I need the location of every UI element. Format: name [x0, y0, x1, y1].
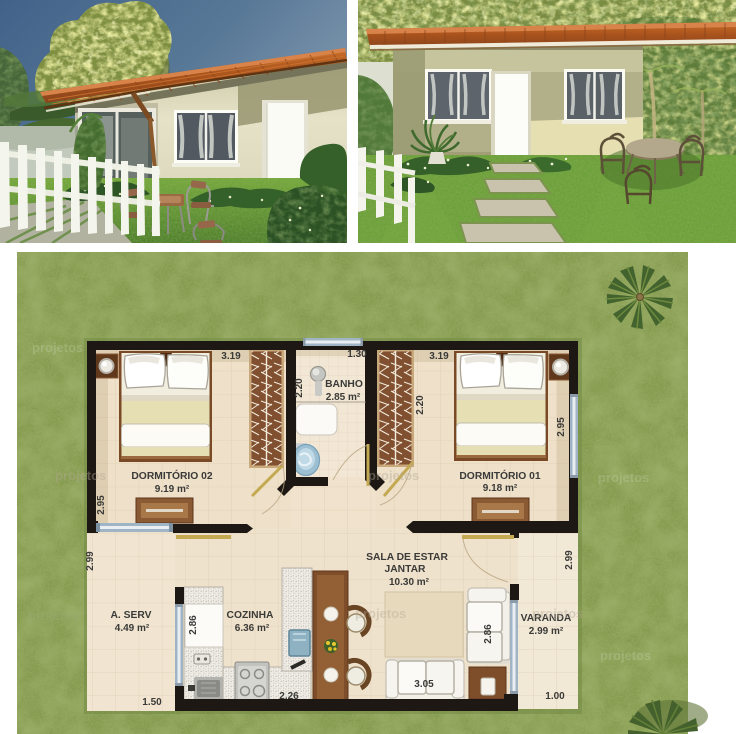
svg-text:2.86: 2.86: [483, 624, 494, 644]
svg-text:projetos: projetos: [532, 606, 583, 621]
svg-text:3.05: 3.05: [414, 679, 434, 690]
svg-text:2.26: 2.26: [279, 691, 299, 702]
svg-text:DORMITÓRIO 02: DORMITÓRIO 02: [131, 469, 213, 482]
svg-text:JANTAR: JANTAR: [385, 564, 427, 575]
svg-text:projetos: projetos: [55, 468, 106, 483]
svg-text:2.95: 2.95: [96, 495, 107, 515]
svg-text:10.30 m²: 10.30 m²: [389, 577, 430, 588]
svg-text:2.85 m²: 2.85 m²: [326, 392, 361, 403]
svg-text:3.19: 3.19: [221, 351, 241, 362]
svg-text:projetos: projetos: [598, 470, 649, 485]
svg-text:BANHO: BANHO: [325, 379, 363, 390]
svg-text:2.86: 2.86: [188, 615, 199, 635]
svg-text:1.30: 1.30: [347, 349, 367, 360]
svg-text:projetos: projetos: [28, 608, 79, 623]
svg-text:2.99 m²: 2.99 m²: [529, 626, 564, 637]
svg-text:9.19 m²: 9.19 m²: [155, 484, 190, 495]
svg-text:COZINHA: COZINHA: [227, 610, 274, 621]
svg-text:2.99: 2.99: [564, 550, 575, 570]
svg-text:A. SERV: A. SERV: [110, 610, 151, 621]
svg-text:4.49 m²: 4.49 m²: [115, 623, 150, 634]
svg-text:projetos: projetos: [355, 606, 406, 621]
svg-text:2.95: 2.95: [556, 417, 567, 437]
svg-text:DORMITÓRIO 01: DORMITÓRIO 01: [459, 469, 541, 482]
svg-text:2.20: 2.20: [415, 395, 426, 415]
svg-text:9.18 m²: 9.18 m²: [483, 483, 518, 494]
svg-text:projetos: projetos: [368, 468, 419, 483]
svg-text:SALA DE ESTAR: SALA DE ESTAR: [366, 552, 448, 563]
svg-text:2.99: 2.99: [85, 551, 96, 571]
svg-text:3.19: 3.19: [429, 351, 449, 362]
svg-text:1.00: 1.00: [545, 691, 565, 702]
svg-text:1.50: 1.50: [142, 697, 162, 708]
svg-text:6.36 m²: 6.36 m²: [235, 623, 270, 634]
svg-text:projetos: projetos: [32, 340, 83, 355]
svg-text:projetos: projetos: [600, 648, 651, 663]
svg-text:2.20: 2.20: [294, 378, 305, 398]
